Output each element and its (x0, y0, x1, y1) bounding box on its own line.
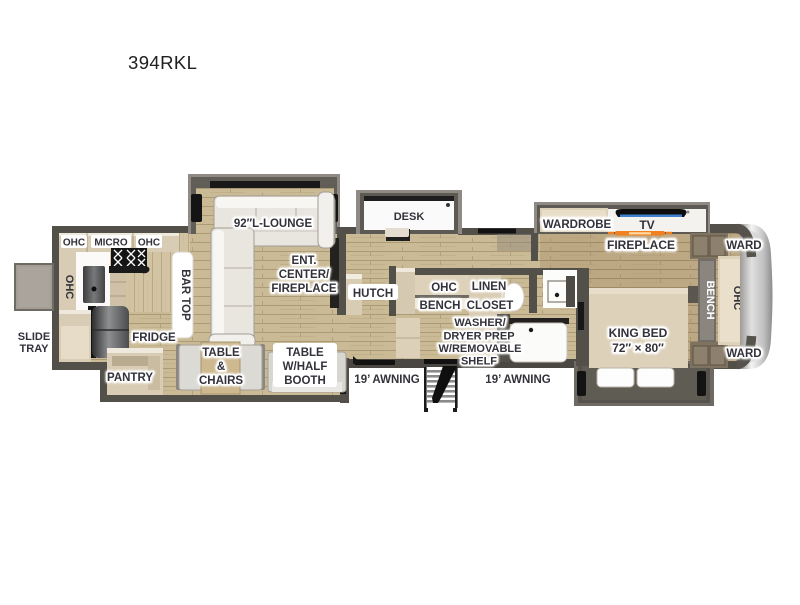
svg-text:DRYER PREP: DRYER PREP (443, 331, 514, 343)
svg-text:SLIDE: SLIDE (18, 331, 50, 343)
svg-text:92″L-LOUNGE: 92″L-LOUNGE (234, 218, 313, 230)
svg-text:HUTCH: HUTCH (353, 288, 393, 300)
svg-text:OHC: OHC (138, 238, 160, 249)
svg-text:72″ × 80″: 72″ × 80″ (612, 341, 664, 355)
svg-text:BENCH: BENCH (420, 300, 461, 312)
svg-text:WARD: WARD (726, 348, 761, 360)
svg-text:&: & (217, 361, 225, 373)
svg-text:WARD: WARD (726, 240, 761, 252)
svg-text:DESK: DESK (394, 211, 425, 223)
svg-text:LINEN: LINEN (472, 281, 507, 293)
svg-text:FIREPLACE: FIREPLACE (271, 283, 337, 295)
svg-text:TV: TV (639, 218, 654, 232)
svg-text:MICRO: MICRO (94, 238, 128, 249)
svg-text:W/REMOVABLE: W/REMOVABLE (439, 343, 522, 355)
svg-text:BAR TOP: BAR TOP (179, 269, 191, 321)
svg-text:TRAY: TRAY (20, 343, 50, 355)
svg-text:394RKL: 394RKL (128, 52, 197, 73)
svg-text:W/HALF: W/HALF (283, 361, 328, 373)
svg-text:CLOSET: CLOSET (467, 300, 514, 312)
svg-text:TABLE: TABLE (202, 347, 240, 359)
svg-text:PANTRY: PANTRY (107, 372, 153, 384)
svg-text:OHC: OHC (63, 238, 85, 249)
svg-text:ENT.: ENT. (292, 255, 317, 267)
svg-text:BENCH: BENCH (704, 280, 716, 319)
svg-text:TABLE: TABLE (286, 347, 324, 359)
svg-text:CENTER/: CENTER/ (279, 269, 330, 281)
svg-text:FIREPLACE: FIREPLACE (607, 238, 675, 252)
svg-text:CHAIRS: CHAIRS (199, 375, 243, 387)
svg-text:BOOTH: BOOTH (284, 375, 326, 387)
svg-text:OHC: OHC (431, 282, 457, 294)
svg-text:SHELF: SHELF (461, 356, 497, 368)
svg-text:WASHER/: WASHER/ (454, 317, 505, 329)
svg-text:FRIDGE: FRIDGE (132, 332, 176, 344)
svg-text:OHC: OHC (63, 275, 75, 300)
svg-text:19’ AWNING: 19’ AWNING (354, 374, 419, 386)
svg-text:19’ AWNING: 19’ AWNING (485, 374, 550, 386)
svg-text:KING BED: KING BED (609, 326, 668, 340)
svg-text:WARDROBE: WARDROBE (543, 219, 612, 231)
